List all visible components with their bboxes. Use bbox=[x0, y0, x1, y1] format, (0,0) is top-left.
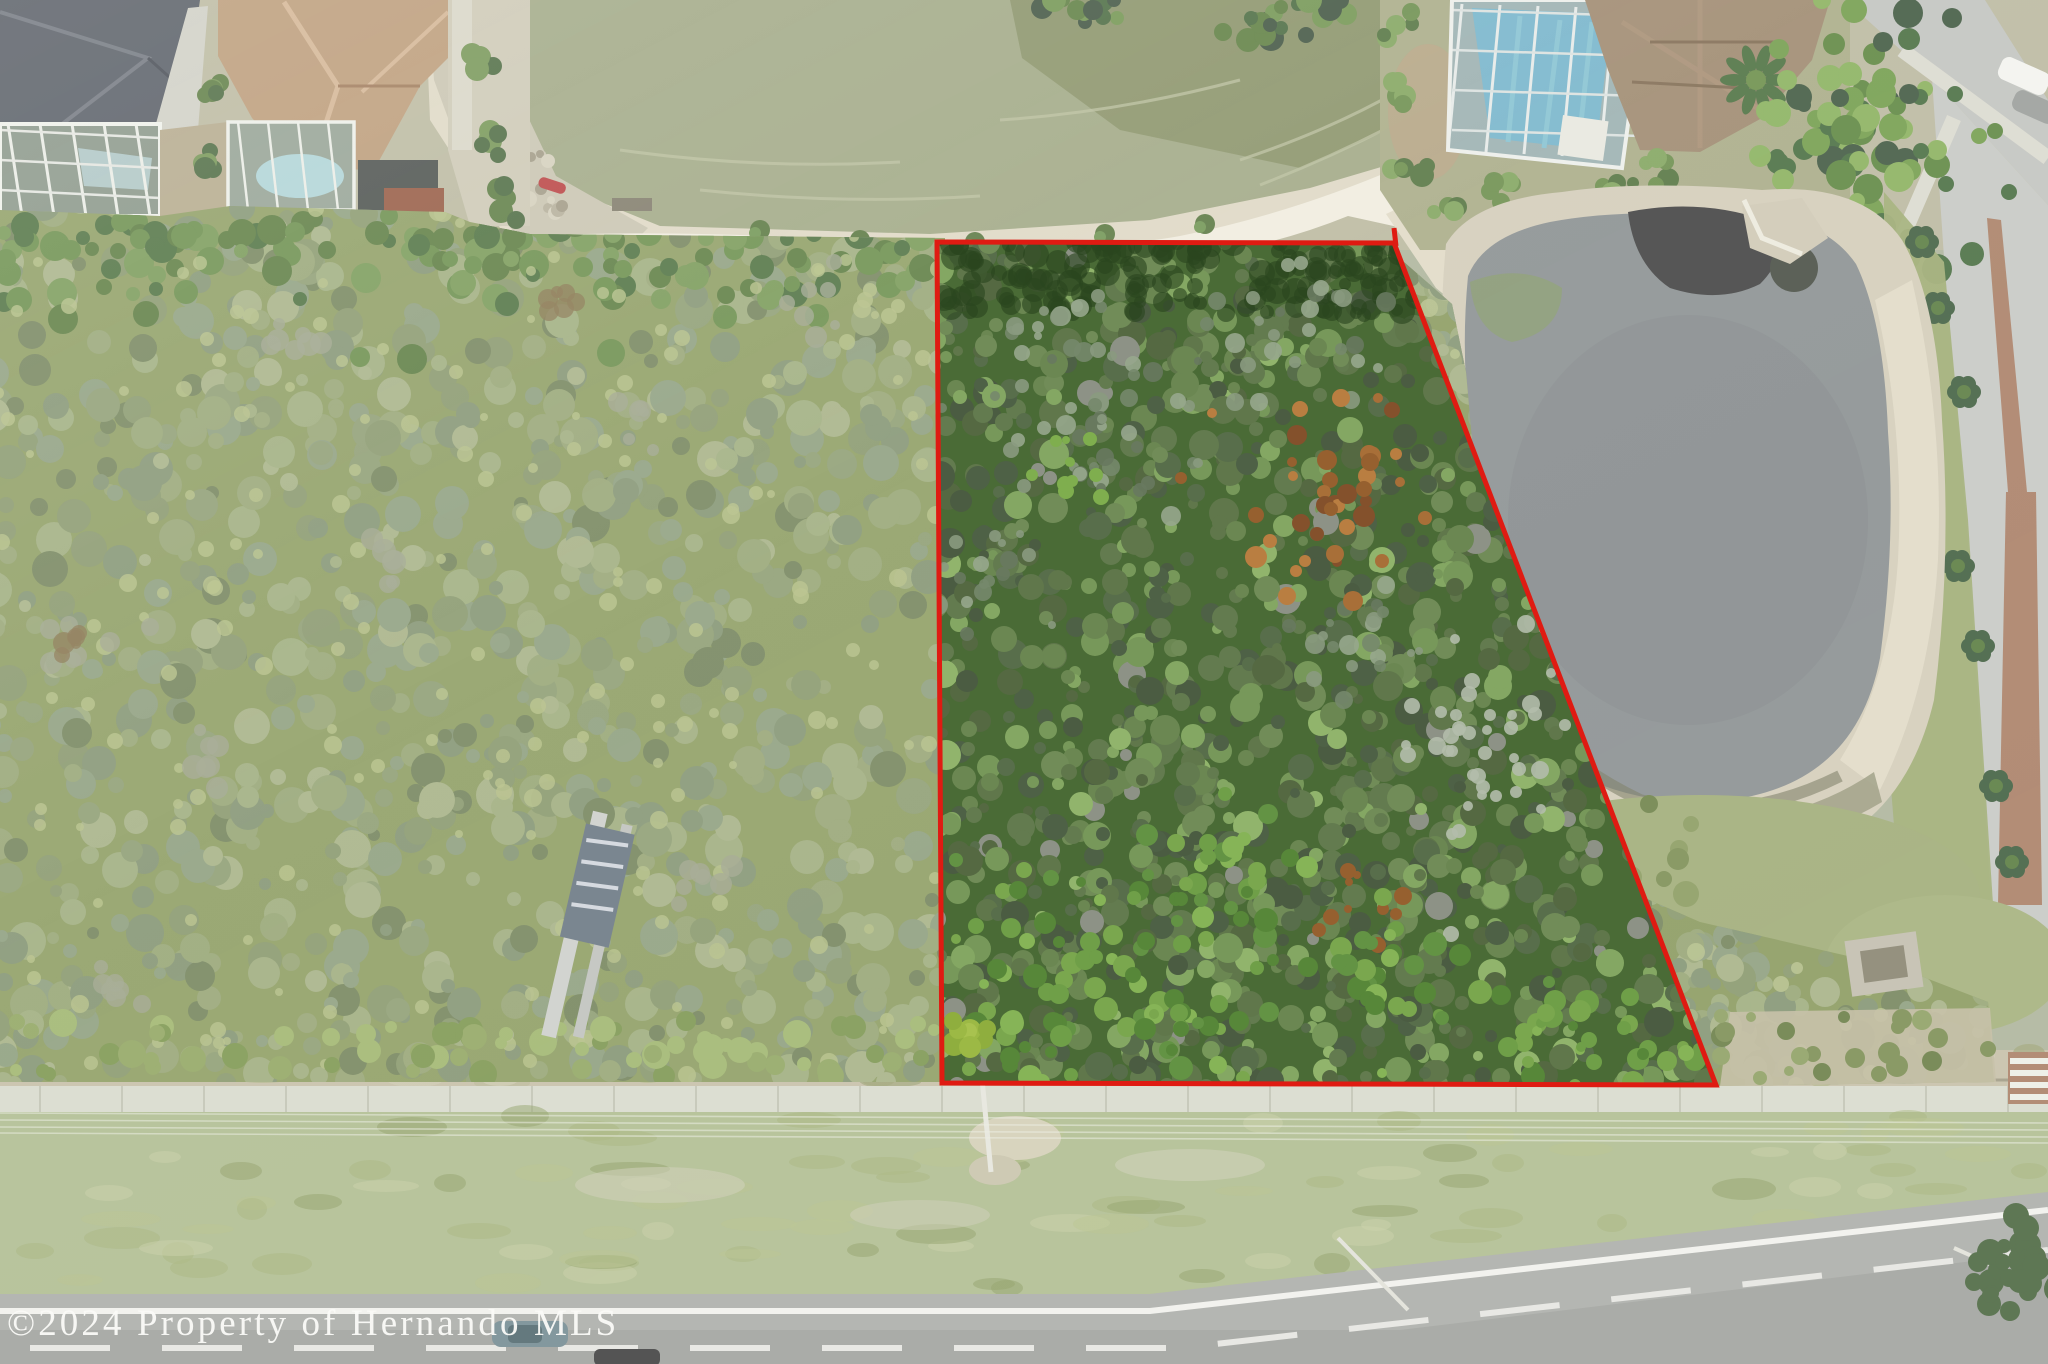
svg-text:©2024 Property of Hernando MLS: ©2024 Property of Hernando MLS bbox=[7, 1303, 619, 1344]
